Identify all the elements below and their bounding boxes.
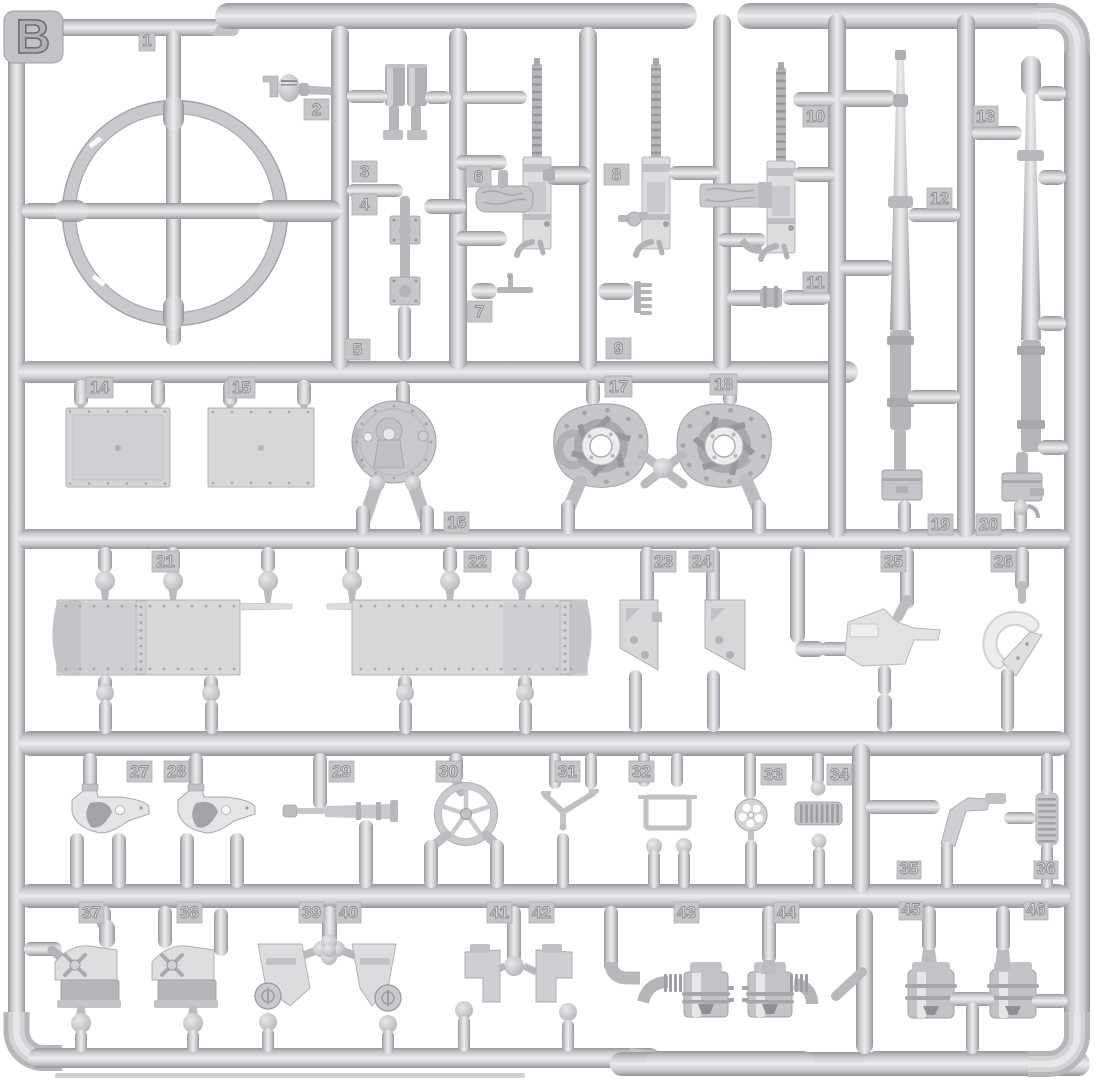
svg-text:25: 25 — [884, 552, 903, 571]
svg-text:10: 10 — [806, 107, 825, 126]
svg-text:26: 26 — [994, 552, 1013, 571]
svg-text:35: 35 — [900, 859, 919, 878]
svg-text:29: 29 — [332, 762, 351, 781]
svg-text:44: 44 — [777, 903, 796, 922]
svg-text:20: 20 — [979, 515, 998, 534]
svg-text:43: 43 — [677, 903, 696, 922]
svg-text:36: 36 — [1037, 859, 1056, 878]
svg-text:21: 21 — [156, 552, 175, 571]
svg-text:28: 28 — [167, 762, 186, 781]
svg-text:37: 37 — [82, 903, 101, 922]
svg-text:19: 19 — [931, 515, 950, 534]
svg-text:2: 2 — [312, 100, 321, 119]
svg-text:7: 7 — [475, 302, 484, 321]
svg-text:15: 15 — [232, 378, 251, 397]
svg-text:38: 38 — [180, 903, 199, 922]
svg-text:3: 3 — [360, 162, 369, 181]
svg-text:30: 30 — [439, 762, 458, 781]
svg-text:B: B — [16, 11, 51, 64]
svg-text:5: 5 — [353, 340, 362, 359]
svg-text:34: 34 — [830, 765, 849, 784]
svg-text:14: 14 — [90, 378, 109, 397]
svg-text:13: 13 — [976, 107, 995, 126]
svg-text:45: 45 — [902, 900, 921, 919]
svg-text:46: 46 — [1027, 900, 1046, 919]
svg-text:1: 1 — [142, 31, 151, 50]
svg-text:31: 31 — [558, 762, 577, 781]
svg-text:11: 11 — [807, 273, 825, 292]
svg-text:18: 18 — [714, 375, 733, 394]
svg-text:9: 9 — [614, 339, 623, 358]
svg-text:17: 17 — [609, 377, 628, 396]
svg-text:27: 27 — [130, 762, 149, 781]
svg-text:22: 22 — [468, 552, 487, 571]
svg-text:8: 8 — [612, 165, 621, 184]
svg-text:42: 42 — [532, 903, 551, 922]
svg-text:40: 40 — [339, 903, 358, 922]
svg-text:32: 32 — [632, 762, 651, 781]
svg-text:33: 33 — [764, 765, 783, 784]
svg-text:4: 4 — [360, 195, 370, 214]
svg-text:41: 41 — [490, 903, 509, 922]
svg-text:16: 16 — [447, 513, 466, 532]
svg-text:23: 23 — [654, 552, 673, 571]
svg-text:39: 39 — [302, 903, 321, 922]
svg-text:6: 6 — [474, 167, 483, 186]
svg-text:12: 12 — [930, 189, 949, 208]
svg-text:24: 24 — [692, 552, 711, 571]
